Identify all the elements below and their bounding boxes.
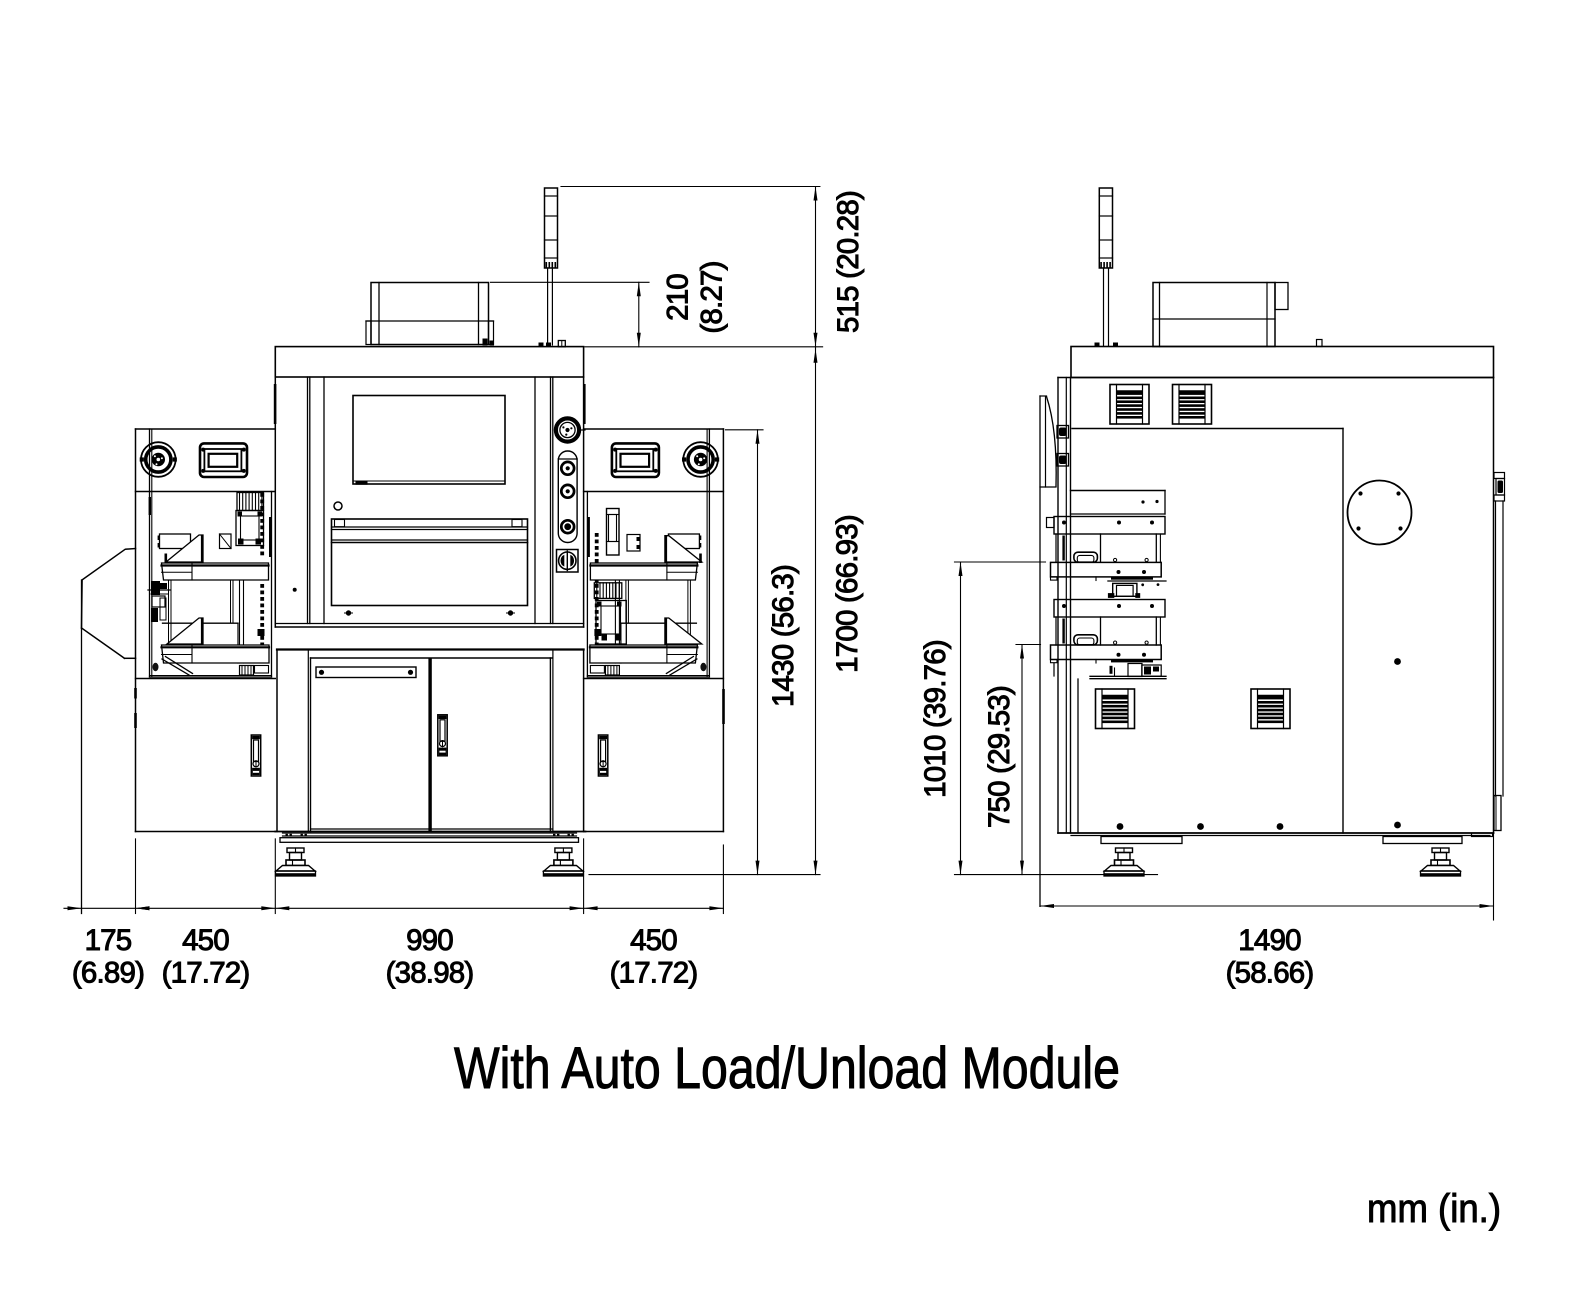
svg-text:1490: 1490 [1238, 924, 1301, 957]
svg-text:1700 (66.93): 1700 (66.93) [831, 515, 864, 673]
svg-text:(17.72): (17.72) [162, 956, 250, 989]
svg-text:990: 990 [406, 924, 453, 957]
svg-text:1430 (56.3): 1430 (56.3) [767, 565, 800, 707]
svg-text:450: 450 [182, 924, 229, 957]
svg-text:450: 450 [630, 924, 677, 957]
svg-text:(6.89): (6.89) [72, 956, 144, 989]
svg-text:750 (29.53): 750 (29.53) [983, 686, 1016, 828]
svg-text:(17.72): (17.72) [610, 956, 698, 989]
svg-text:(8.27): (8.27) [695, 261, 728, 333]
svg-text:515 (20.28): 515 (20.28) [832, 191, 865, 333]
svg-text:1010 (39.76): 1010 (39.76) [919, 640, 952, 798]
svg-text:With Auto Load/Unload Module: With Auto Load/Unload Module [454, 1036, 1120, 1101]
svg-text:mm (in.): mm (in.) [1367, 1187, 1501, 1231]
svg-text:(38.98): (38.98) [386, 956, 474, 989]
svg-text:(58.66): (58.66) [1226, 956, 1314, 989]
svg-text:210: 210 [661, 274, 694, 321]
svg-text:175: 175 [85, 924, 132, 957]
